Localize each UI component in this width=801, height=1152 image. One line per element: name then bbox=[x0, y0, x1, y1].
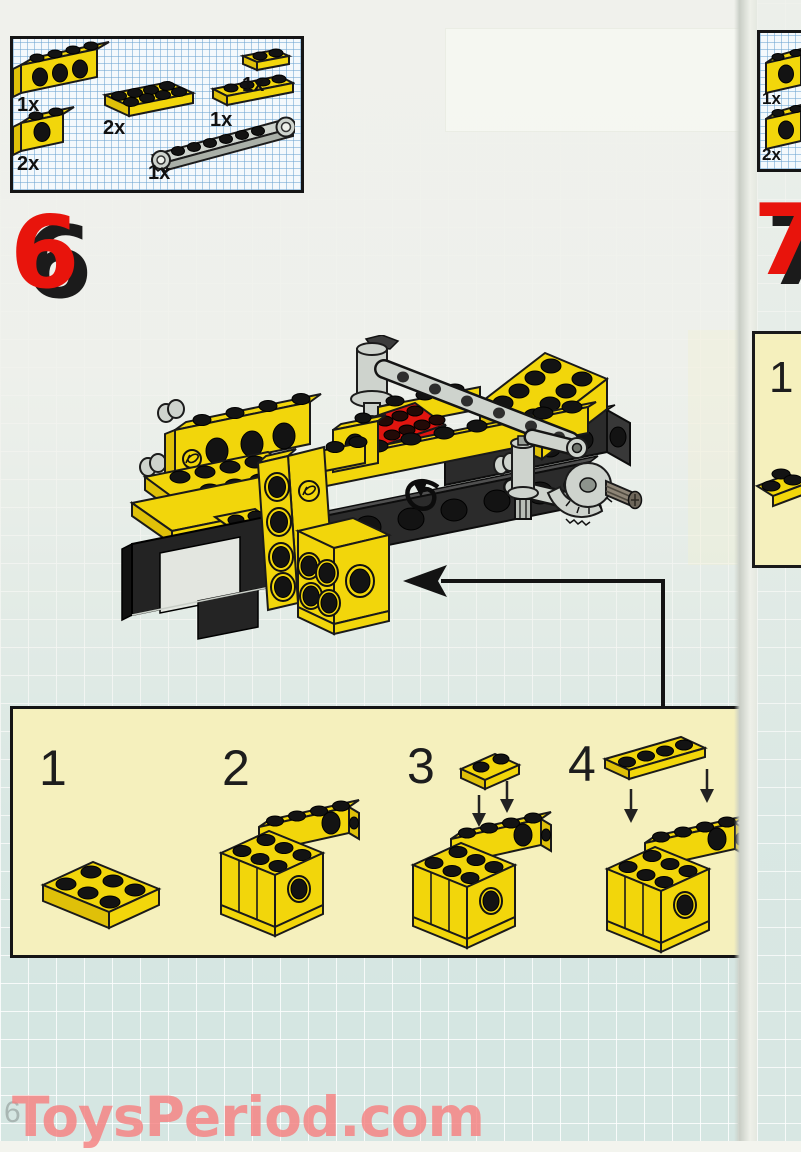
part-technic-brick-yellow-icon bbox=[766, 49, 801, 93]
callout-arrow bbox=[395, 558, 675, 718]
qty-label: 1x bbox=[210, 110, 232, 130]
part-plate-2x4-icon bbox=[105, 82, 193, 117]
part-technic-brick-1x4-icon bbox=[13, 42, 109, 97]
substep-number-2: 2 bbox=[222, 743, 250, 793]
substep-number-1: 1 bbox=[39, 743, 67, 793]
part-technic-brick-yellow-icon bbox=[766, 105, 801, 149]
substep-number-3: 3 bbox=[407, 741, 435, 791]
instruction-page: 1x 2x 2x 1x 1x 1x 6 bbox=[0, 0, 738, 1152]
page-gutter bbox=[734, 0, 757, 1152]
qty-label: 1x bbox=[17, 95, 39, 115]
substep2-assembly bbox=[221, 800, 359, 936]
substeps-illustration bbox=[13, 709, 749, 955]
qty-label: 2x bbox=[103, 118, 125, 138]
step-number: 6 bbox=[10, 203, 80, 303]
substep1-plate bbox=[43, 862, 159, 928]
page-showthrough bbox=[445, 28, 757, 132]
part-plate-1x2-icon bbox=[243, 49, 289, 70]
qty-label: 1x bbox=[242, 75, 264, 95]
substep3-assembly bbox=[413, 812, 551, 948]
substep4-assembly bbox=[607, 816, 745, 952]
qty-label: 2x bbox=[17, 154, 39, 174]
plate-fragment-yellow bbox=[757, 469, 801, 506]
substep3-added-plate bbox=[461, 754, 519, 827]
next-page-substep-illustration bbox=[755, 334, 801, 565]
substep4-added-plate bbox=[605, 737, 714, 823]
page-showthrough-right bbox=[688, 330, 738, 565]
parts-callout-box: 1x 2x 2x 1x 1x 1x bbox=[10, 36, 304, 193]
qty-label: 2x bbox=[762, 146, 781, 163]
substeps-panel: 1 2 3 4 bbox=[10, 706, 752, 958]
next-page-substeps-panel: 1 bbox=[752, 331, 801, 568]
qty-label: 1x bbox=[762, 90, 781, 107]
qty-label: 1x bbox=[148, 163, 170, 183]
substep-number-4: 4 bbox=[568, 739, 596, 789]
next-page-parts-box: 1x 2x bbox=[757, 30, 801, 172]
next-page-step-number: 7 bbox=[753, 192, 801, 290]
watermark: ToysPeriod.com bbox=[12, 1085, 484, 1149]
